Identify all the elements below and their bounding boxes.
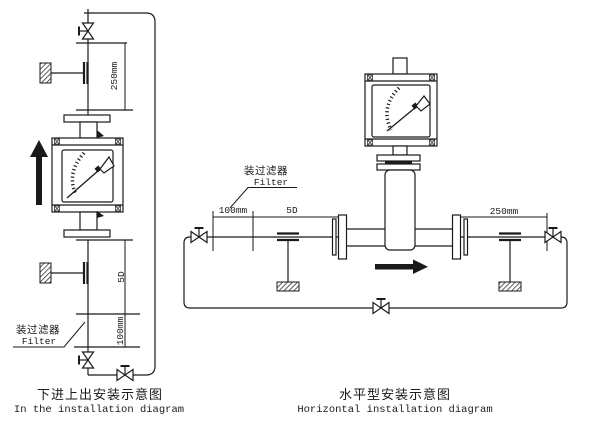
pipe-flange xyxy=(464,219,468,255)
filter-label-zh: 装过滤器 xyxy=(16,323,60,336)
meter-neck xyxy=(80,212,97,230)
meter-flange-plate xyxy=(377,164,420,170)
flow-meter xyxy=(333,58,468,259)
pipe-flange xyxy=(333,219,337,255)
installation-diagram-canvas: 250mm 5D 100mm xyxy=(0,0,600,423)
meter-flange-plate xyxy=(64,230,110,237)
valve-icon xyxy=(79,23,94,39)
flow-direction-arrow-icon xyxy=(375,260,428,275)
pipe-flange xyxy=(453,215,461,259)
dimension-label: 250mm xyxy=(109,61,120,90)
diagram-caption-zh: 下进上出安装示意图 xyxy=(37,387,163,403)
installation-diagram-page: 250mm 5D 100mm xyxy=(0,0,600,423)
flow-meter xyxy=(52,115,123,237)
filter-label: 装过滤器 Filter xyxy=(13,322,85,347)
flow-direction-arrow-icon xyxy=(30,140,48,205)
meter-flange-plate xyxy=(64,115,110,122)
dimension-label: 100mm xyxy=(115,316,126,345)
diagram-caption-en: In the installation diagram xyxy=(14,404,184,416)
meter-flange-plate xyxy=(377,155,420,161)
vertical-installation-diagram: 250mm 5D 100mm xyxy=(13,9,184,416)
valve-icon xyxy=(117,366,133,381)
filter-label-en: Filter xyxy=(254,177,288,188)
dimension-label: 5D xyxy=(286,205,298,216)
diagram-caption-zh: 水平型安装示意图 xyxy=(339,387,451,403)
meter-top-stub xyxy=(393,58,407,74)
filter-label-en: Filter xyxy=(22,336,56,347)
dimension-label: 5D xyxy=(116,271,127,283)
meter-neck xyxy=(393,146,407,155)
valve-icon xyxy=(79,352,94,368)
valve-icon xyxy=(191,228,207,243)
neck-marker xyxy=(97,130,104,138)
pipe-flange xyxy=(339,215,347,259)
dimension-label: 250mm xyxy=(490,206,519,217)
filter-label: 装过滤器 Filter xyxy=(230,164,297,208)
diagram-caption-en: Horizontal installation diagram xyxy=(297,404,492,416)
wall-support-icon xyxy=(40,262,88,284)
meter-body xyxy=(385,170,415,250)
gauge-face xyxy=(372,85,430,137)
floor-support-icon xyxy=(277,234,299,292)
dimension-line xyxy=(213,211,547,251)
floor-support-icon xyxy=(499,234,521,292)
meter-neck xyxy=(80,122,97,138)
gauge-face xyxy=(62,150,114,202)
horizontal-installation-diagram: 100mm 5D 250mm 装过滤器 Filter 水平型安装示意图 Hori… xyxy=(184,58,567,416)
dimension-label: 100mm xyxy=(219,205,248,216)
valve-icon xyxy=(373,299,389,314)
filter-label-zh: 装过滤器 xyxy=(244,164,288,177)
wall-support-icon xyxy=(40,62,88,84)
